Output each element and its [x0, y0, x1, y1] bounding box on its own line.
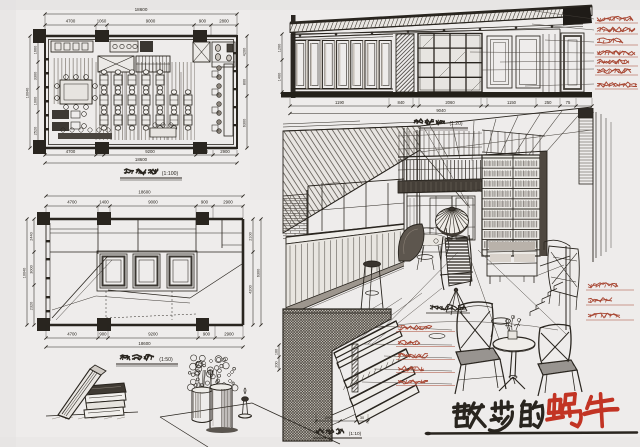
svg-text:9200: 9200	[148, 332, 158, 337]
svg-text:900: 900	[201, 200, 209, 205]
svg-text:900: 900	[201, 149, 209, 154]
svg-text:4200: 4200	[249, 285, 253, 293]
svg-text:3300: 3300	[34, 72, 38, 80]
svg-text:2900: 2900	[220, 149, 230, 154]
svg-text:10040: 10040	[23, 268, 27, 279]
svg-text:1400: 1400	[278, 73, 282, 81]
svg-text:4200: 4200	[243, 48, 247, 56]
svg-text:2520: 2520	[34, 127, 38, 135]
svg-text:840: 840	[398, 100, 406, 105]
svg-text:4700: 4700	[67, 200, 77, 205]
svg-text:900: 900	[99, 332, 107, 337]
svg-text:1150: 1150	[507, 100, 517, 105]
svg-text:75: 75	[566, 100, 571, 105]
svg-text:1060: 1060	[97, 19, 107, 24]
svg-text:200: 200	[325, 416, 331, 420]
svg-text:1000: 1000	[34, 97, 38, 105]
svg-text:18600: 18600	[138, 341, 151, 346]
svg-text:(1:100): (1:100)	[162, 171, 179, 177]
svg-text:2320: 2320	[30, 302, 34, 310]
svg-text:18600: 18600	[135, 7, 148, 12]
svg-text:6300: 6300	[257, 269, 261, 277]
svg-text:9200: 9200	[145, 149, 155, 154]
svg-text:4700: 4700	[66, 149, 76, 154]
svg-text:6300: 6300	[243, 119, 247, 127]
svg-text:10040: 10040	[26, 88, 30, 99]
svg-text:1200: 1200	[278, 44, 282, 52]
svg-text:18600: 18600	[135, 157, 148, 162]
svg-text:9000: 9000	[146, 19, 156, 24]
svg-text:100: 100	[275, 349, 279, 355]
svg-text:9040: 9040	[436, 108, 446, 113]
svg-text:2060: 2060	[445, 100, 455, 105]
svg-text:9000: 9000	[148, 200, 158, 205]
svg-text:18600: 18600	[138, 190, 151, 195]
svg-text:800: 800	[96, 149, 104, 154]
svg-text:1190: 1190	[335, 100, 345, 105]
svg-text:1660: 1660	[34, 46, 38, 54]
svg-text:30: 30	[360, 416, 364, 420]
svg-text:2440: 2440	[30, 232, 34, 240]
svg-text:800: 800	[243, 79, 247, 85]
svg-text:900: 900	[203, 332, 211, 337]
svg-text:3000: 3000	[30, 265, 34, 273]
svg-text:2900: 2900	[224, 332, 234, 337]
svg-text:(1:50): (1:50)	[159, 357, 173, 363]
svg-text:200: 200	[275, 361, 279, 367]
svg-text:250: 250	[545, 100, 553, 105]
svg-text:900: 900	[199, 19, 207, 24]
svg-text:4700: 4700	[67, 332, 77, 337]
svg-text:1400: 1400	[99, 200, 109, 205]
svg-text:4700: 4700	[66, 19, 76, 24]
svg-text:2100: 2100	[249, 232, 253, 240]
svg-text:2800: 2800	[219, 19, 229, 24]
svg-text:(1:10): (1:10)	[349, 431, 362, 437]
svg-text:2900: 2900	[223, 200, 233, 205]
